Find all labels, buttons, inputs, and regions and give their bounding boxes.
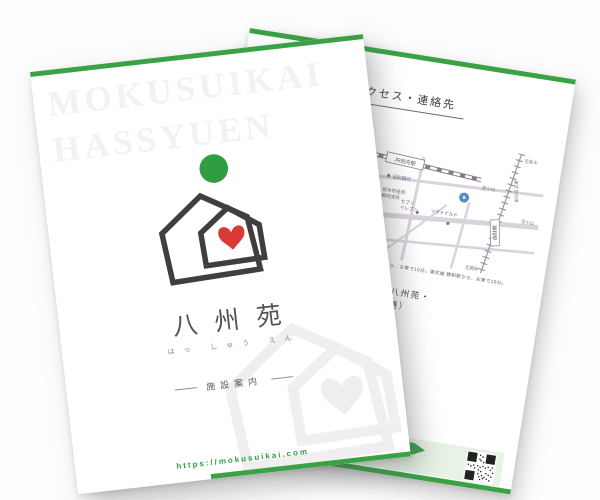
facility-logo: [143, 147, 288, 301]
logo-heart-icon: [217, 225, 246, 251]
poi-bank-label: 足利銀行: [392, 173, 412, 183]
tobu-railway: 東武日光線 静和駅 至栃木 至小山 至藤岡: [465, 148, 545, 280]
qr-code: [463, 450, 497, 484]
logo-green-dot: [197, 153, 229, 185]
tobu-station-label: 静和駅: [491, 225, 498, 240]
subtitle-dash-right: [271, 376, 293, 379]
subtitle-dash-left: [175, 387, 197, 390]
direction-oyama-a: 至小山: [481, 184, 496, 193]
brochure-mockup: アクセス・連絡先 JR岩舟駅 至佐野: [0, 0, 600, 500]
logo-house-outline-outer: [158, 190, 261, 283]
brochure-front-page: MOKUSUIKAI HASSYUEN 八州苑 はっ しゅう えん 施設案内: [30, 34, 411, 494]
direction-fujioka: 至藤岡: [465, 264, 480, 273]
direction-tochigi: 至栃木: [524, 158, 539, 167]
